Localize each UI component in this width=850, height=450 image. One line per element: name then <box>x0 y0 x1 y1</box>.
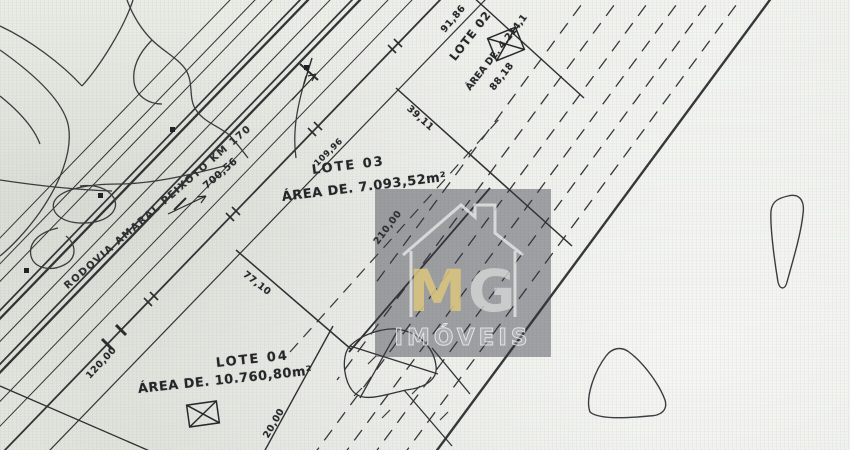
terrain-shapes <box>589 195 804 417</box>
watermark-subtitle: IMÓVEIS <box>394 323 531 351</box>
teardrop-shape <box>771 195 804 288</box>
survey-plan-scan: RODOVIA AMARAL PEIXOTO KM 170 700,56 109… <box>0 0 850 450</box>
area-marker-lote04 <box>187 401 220 427</box>
watermark: MG IMÓVEIS <box>375 189 551 357</box>
watermark-mg-text: MG <box>408 257 517 325</box>
triangle-shape <box>589 349 666 418</box>
hatch-marks <box>354 356 448 420</box>
watermark-logo: MG IMÓVEIS <box>375 189 551 357</box>
